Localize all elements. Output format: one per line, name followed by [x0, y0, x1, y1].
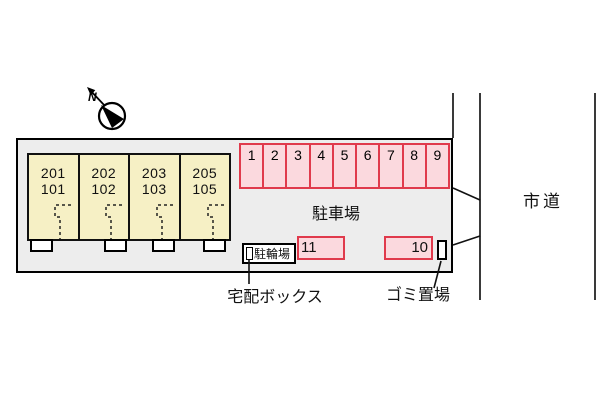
site-plan-canvas: 201 101 202 102 203 103 205 105 1 2 3 4 … — [0, 0, 600, 400]
unit-number-upper: 202 — [80, 166, 129, 182]
apartment-building: 201 101 202 102 203 103 205 105 — [27, 153, 231, 241]
unit-number-lower: 101 — [29, 182, 78, 198]
entrance-porch-3 — [152, 239, 175, 252]
unit-number-lower: 103 — [130, 182, 179, 198]
parking-space-10: 10 — [384, 236, 433, 260]
parking-space-4: 4 — [309, 143, 334, 189]
unit-205-105: 205 105 — [181, 155, 230, 239]
parking-space-8: 8 — [402, 143, 427, 189]
north-arrow-icon: N — [87, 87, 125, 129]
parking-area-label: 駐車場 — [279, 200, 393, 224]
north-letter: N — [88, 90, 97, 104]
parking-space-1: 1 — [239, 143, 264, 189]
parking-space-5: 5 — [332, 143, 357, 189]
driveway-flare-bottom — [453, 236, 480, 245]
parking-row: 1 2 3 4 5 6 7 8 9 — [239, 143, 450, 189]
bicycle-parking-label: 駐輪場 — [254, 245, 290, 262]
parking-space-2: 2 — [262, 143, 287, 189]
entrance-porch-4 — [203, 239, 226, 252]
unit-number-lower: 102 — [80, 182, 129, 198]
driveway-flares — [453, 188, 480, 245]
unit-203-103: 203 103 — [130, 155, 181, 239]
entrance-porch-2 — [104, 239, 127, 252]
parking-space-3: 3 — [285, 143, 310, 189]
garbage-area-label: ゴミ置場 — [379, 281, 457, 305]
parking-space-6: 6 — [355, 143, 380, 189]
garbage-area-box — [437, 240, 447, 260]
delivery-box-icon — [246, 247, 253, 260]
delivery-box-label: 宅配ボックス — [219, 283, 331, 307]
unit-201-101: 201 101 — [29, 155, 80, 239]
entrance-porch-1 — [30, 239, 53, 252]
unit-number-upper: 205 — [181, 166, 230, 182]
unit-number-lower: 105 — [181, 182, 230, 198]
unit-number-upper: 201 — [29, 166, 78, 182]
parking-space-11: 11 — [297, 236, 345, 260]
parking-space-7: 7 — [378, 143, 403, 189]
unit-202-102: 202 102 — [80, 155, 131, 239]
bicycle-parking-box: 駐輪場 — [242, 243, 296, 264]
parking-space-9: 9 — [425, 143, 450, 189]
driveway-flare-top — [453, 188, 480, 200]
unit-number-upper: 203 — [130, 166, 179, 182]
city-road-label: 市道 — [517, 187, 569, 212]
